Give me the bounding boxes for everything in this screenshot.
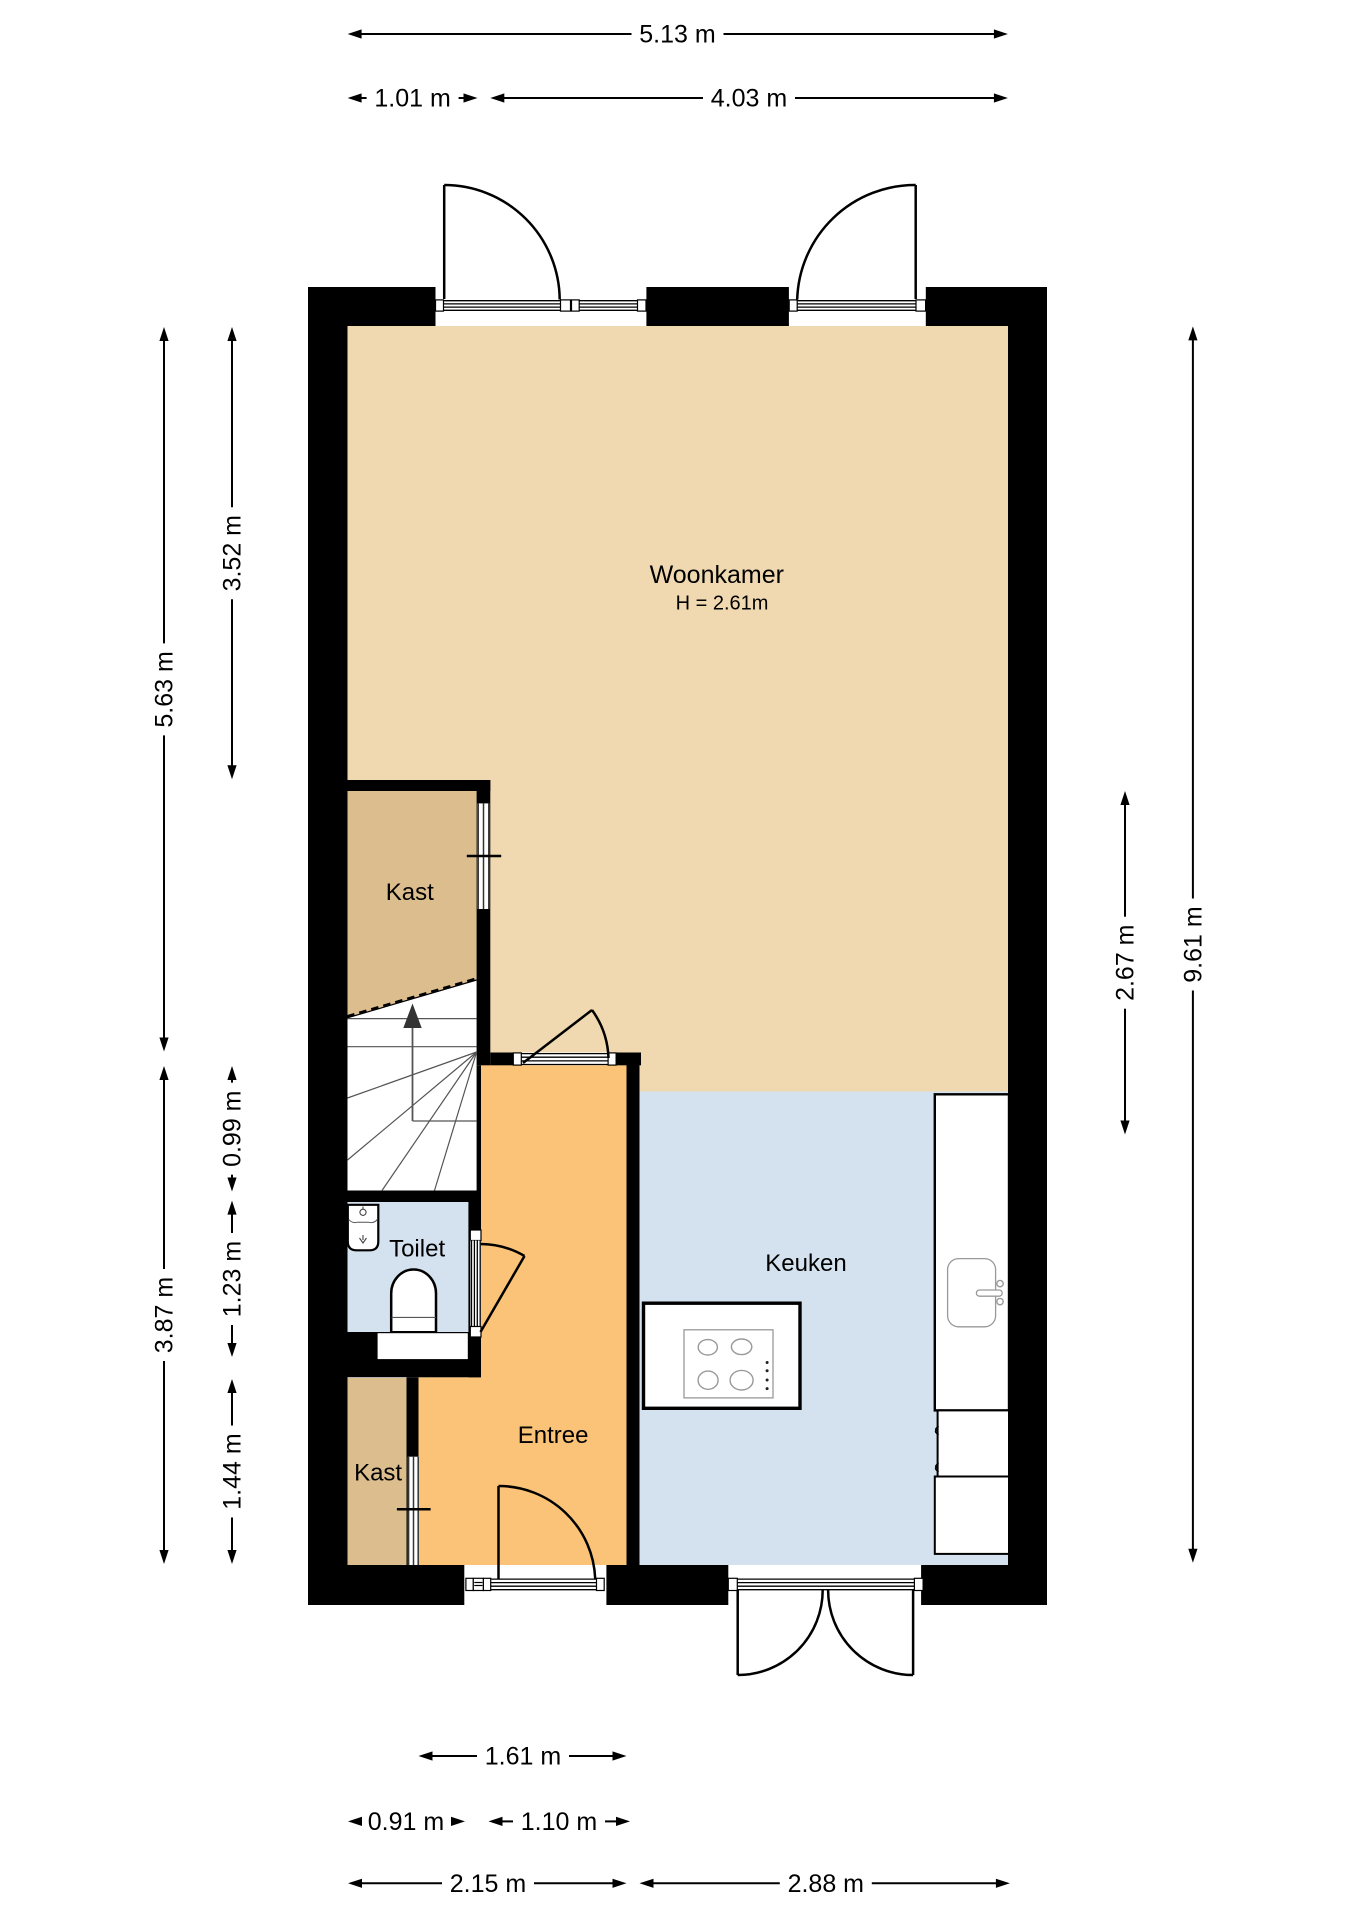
svg-text:2.88 m: 2.88 m xyxy=(788,1870,864,1898)
svg-text:3.52 m: 3.52 m xyxy=(219,515,247,591)
svg-text:2.67 m: 2.67 m xyxy=(1112,924,1140,1000)
svg-text:1.01 m: 1.01 m xyxy=(374,85,450,113)
svg-text:Keuken: Keuken xyxy=(765,1250,846,1277)
svg-text:Entree: Entree xyxy=(518,1422,589,1449)
svg-text:Woonkamer: Woonkamer xyxy=(650,561,784,589)
svg-text:Kast: Kast xyxy=(386,879,434,906)
svg-text:5.63 m: 5.63 m xyxy=(151,651,179,727)
svg-text:1.61 m: 1.61 m xyxy=(485,1743,561,1771)
svg-text:3.87 m: 3.87 m xyxy=(151,1277,179,1353)
svg-text:0.91 m: 0.91 m xyxy=(368,1808,444,1836)
svg-text:1.23 m: 1.23 m xyxy=(219,1241,247,1317)
svg-text:1.10 m: 1.10 m xyxy=(521,1808,597,1836)
svg-text:5.13 m: 5.13 m xyxy=(639,21,715,49)
svg-text:0.99 m: 0.99 m xyxy=(219,1090,247,1166)
svg-text:Toilet: Toilet xyxy=(389,1235,445,1262)
svg-text:4.03 m: 4.03 m xyxy=(711,85,787,113)
svg-text:1.44 m: 1.44 m xyxy=(219,1433,247,1509)
svg-text:H = 2.61m: H = 2.61m xyxy=(676,593,769,615)
svg-text:9.61 m: 9.61 m xyxy=(1180,906,1208,982)
svg-text:Kast: Kast xyxy=(354,1460,402,1487)
svg-text:2.15 m: 2.15 m xyxy=(450,1870,526,1898)
